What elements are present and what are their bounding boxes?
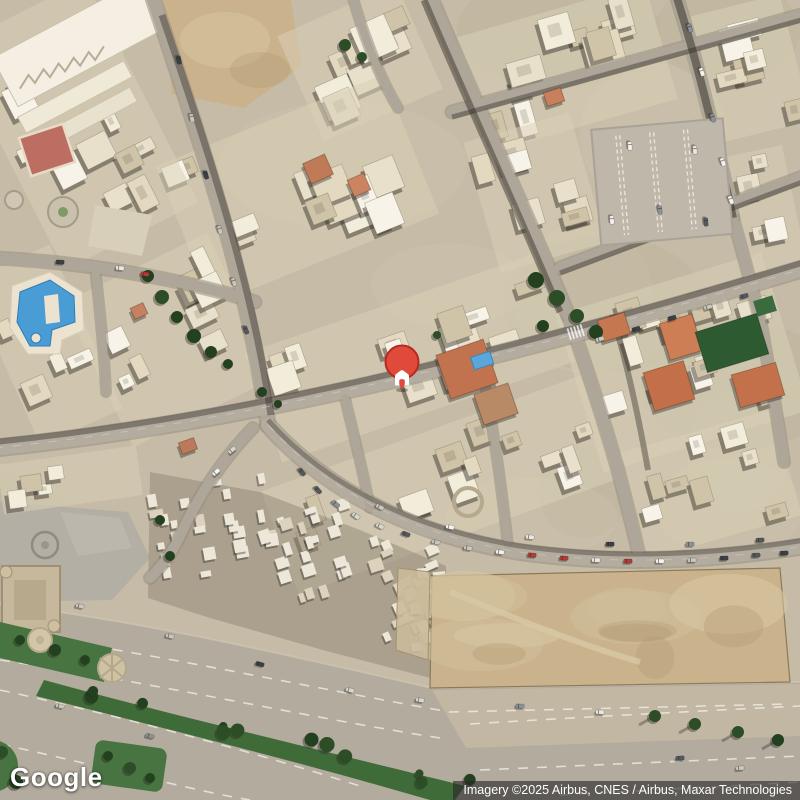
- google-logo[interactable]: Google: [10, 762, 103, 793]
- imagery-attribution: Imagery ©2025 Airbus, CNES / Airbus, Max…: [453, 781, 800, 800]
- satellite-imagery: [0, 0, 800, 800]
- dirt-lot: [396, 568, 790, 688]
- parking-lot: [591, 118, 733, 245]
- place-marker[interactable]: [382, 343, 422, 392]
- map-viewport[interactable]: Google Imagery ©2025 Airbus, CNES / Airb…: [0, 0, 800, 800]
